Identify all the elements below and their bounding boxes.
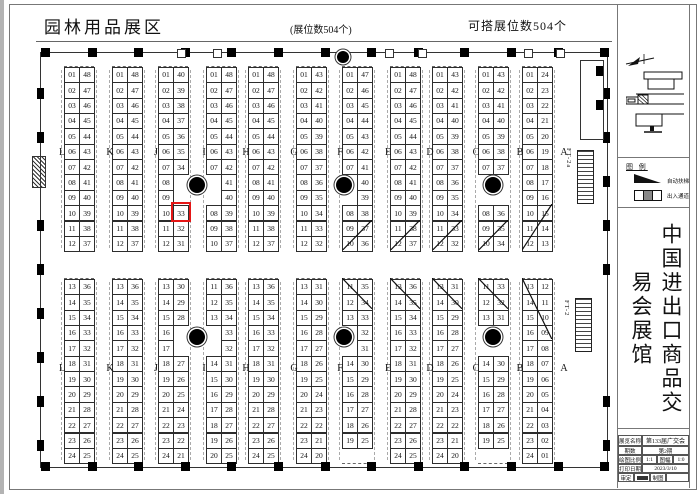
booth-cell: 12 bbox=[64, 236, 80, 252]
booth-cell: 37 bbox=[447, 159, 463, 175]
booth-cell: 39 bbox=[405, 205, 421, 221]
booth-cell: 28 bbox=[447, 325, 463, 341]
legend-item-label: 出入通道 bbox=[667, 192, 689, 200]
booth-cell: 26 bbox=[173, 371, 189, 387]
booth-cell: 02 bbox=[342, 82, 358, 98]
titleblock-label: 图幅 bbox=[657, 455, 673, 464]
booth-cell: 38 bbox=[173, 98, 189, 114]
booth-cell: 27 bbox=[447, 340, 463, 356]
booth-cell: 45 bbox=[357, 98, 373, 114]
booth-cell: 01 bbox=[248, 67, 264, 83]
legend-passage-symbol bbox=[634, 190, 662, 201]
legend-title: 图 例 bbox=[626, 162, 648, 172]
booth-cell: 42 bbox=[405, 159, 421, 175]
booth-cell: 36 bbox=[493, 205, 509, 221]
booth-cell: 13 bbox=[112, 279, 128, 295]
booth-cell: 38 bbox=[263, 221, 279, 237]
booth-cell: 26 bbox=[357, 417, 373, 433]
wall-pillar bbox=[600, 462, 609, 471]
booth-cell: 12 bbox=[296, 236, 312, 252]
booth-cell: 08 bbox=[158, 174, 174, 190]
booth-cell: 35 bbox=[493, 221, 509, 237]
booth-cell: 27 bbox=[357, 402, 373, 418]
booth-cell: 40 bbox=[405, 190, 421, 206]
booth-cell: 42 bbox=[447, 82, 463, 98]
booth-cell: 01 bbox=[296, 67, 312, 83]
booth-cell: 46 bbox=[263, 98, 279, 114]
booth-cell: 46 bbox=[221, 98, 237, 114]
booth-cell: 41 bbox=[127, 174, 143, 190]
booth-cell: 39 bbox=[173, 82, 189, 98]
booth-cell: 35 bbox=[127, 294, 143, 310]
booth-cell: 36 bbox=[263, 279, 279, 295]
booth-cell: 19 bbox=[537, 144, 553, 160]
booth-cell: 34 bbox=[311, 205, 327, 221]
wall-pillar bbox=[37, 264, 44, 275]
column-pillar bbox=[336, 177, 352, 193]
wall-pillar bbox=[460, 462, 469, 471]
booth-cell: 01 bbox=[112, 67, 128, 83]
booth-cell: 20 bbox=[206, 448, 222, 464]
booth-cell: 29 bbox=[263, 386, 279, 402]
booth-strip: 1136123513343332143115301629172818271926… bbox=[206, 278, 236, 464]
booth-cell: 31 bbox=[263, 356, 279, 372]
wall-door bbox=[213, 49, 222, 58]
booth-cell: 27 bbox=[311, 340, 327, 356]
booth-cell: 15 bbox=[296, 310, 312, 326]
wall-pillar bbox=[596, 66, 603, 76]
aisle-letter: J bbox=[150, 363, 162, 374]
booth-cell: 08 bbox=[64, 174, 80, 190]
booth-cell: 08 bbox=[342, 205, 358, 221]
booth-cell: 40 bbox=[263, 190, 279, 206]
booth-cell: 43 bbox=[263, 144, 279, 160]
booth-cell: 04 bbox=[342, 113, 358, 129]
wall-pillar bbox=[460, 48, 469, 57]
booth-cell: 30 bbox=[127, 371, 143, 387]
booth-cell: 02 bbox=[432, 82, 448, 98]
booth-cell: 08 bbox=[296, 174, 312, 190]
booth-cell: 24 bbox=[112, 448, 128, 464]
booth-cell: 33 bbox=[79, 325, 95, 341]
booth-cell: 34 bbox=[127, 310, 143, 326]
booth-cell: 13 bbox=[537, 236, 553, 252]
booth-cell: 05 bbox=[390, 128, 406, 144]
booth-cell: 10 bbox=[296, 205, 312, 221]
booth-cell: 44 bbox=[221, 128, 237, 144]
booth-cell: 12 bbox=[522, 236, 538, 252]
booth-cell: 08 bbox=[432, 174, 448, 190]
booth-cell: 01 bbox=[342, 67, 358, 83]
booth-cell: 08 bbox=[206, 205, 222, 221]
booth-cell: 48 bbox=[263, 67, 279, 83]
booth-cell: 10 bbox=[522, 205, 538, 221]
booth-cell: 37 bbox=[221, 236, 237, 252]
booth-cell: 48 bbox=[79, 67, 95, 83]
booth-cell: 37 bbox=[127, 236, 143, 252]
booth-cell: 30 bbox=[447, 294, 463, 310]
booth-cell: 07 bbox=[296, 159, 312, 175]
booth-cell: 21 bbox=[248, 402, 264, 418]
aisle-letter: K bbox=[104, 147, 116, 158]
booth-cell: 39 bbox=[493, 128, 509, 144]
booth-cell: 02 bbox=[158, 82, 174, 98]
booth-cell: 20 bbox=[432, 386, 448, 402]
booth-cell: 15 bbox=[522, 310, 538, 326]
booth-cell: 20 bbox=[537, 128, 553, 144]
booth-cell: 17 bbox=[432, 340, 448, 356]
booth-cell: 08 bbox=[537, 340, 553, 356]
wall-pillar bbox=[134, 48, 143, 57]
booth-cell: 40 bbox=[127, 190, 143, 206]
booth-cell: 48 bbox=[405, 67, 421, 83]
escalator-ft2-label: FT-2 bbox=[563, 300, 570, 350]
booth-cell: 27 bbox=[221, 417, 237, 433]
booth-cell: 03 bbox=[432, 98, 448, 114]
booth-cell: 22 bbox=[522, 417, 538, 433]
booth-cell: 29 bbox=[221, 386, 237, 402]
booth-cell: 10 bbox=[112, 205, 128, 221]
hall-name-vertical: 中国进出口商品交易会展馆 bbox=[622, 212, 686, 426]
booth-cell: 01 bbox=[478, 67, 494, 83]
booth-cell: 07 bbox=[158, 159, 174, 175]
booth-cell: 05 bbox=[537, 386, 553, 402]
booth-cell: 29 bbox=[493, 371, 509, 387]
booth-strip: 0143024203410440053906380737083609351034 bbox=[478, 66, 508, 252]
booth-cell: 25 bbox=[311, 371, 327, 387]
booth-cell: 37 bbox=[493, 159, 509, 175]
booth-cell: 44 bbox=[405, 128, 421, 144]
booth-cell: 31 bbox=[173, 236, 189, 252]
booth-cell: 30 bbox=[173, 279, 189, 295]
booth-cell: 16 bbox=[158, 325, 174, 341]
booth-cell: 14 bbox=[432, 294, 448, 310]
aisle-letter: K bbox=[104, 363, 116, 374]
booth-cell: 09 bbox=[248, 190, 264, 206]
booth-cell: 17 bbox=[158, 340, 174, 356]
booth-cell: 17 bbox=[390, 340, 406, 356]
booth-cell: 29 bbox=[357, 371, 373, 387]
booth-cell: 37 bbox=[405, 236, 421, 252]
booth-cell: 23 bbox=[248, 433, 264, 449]
booth-cell: 11 bbox=[296, 221, 312, 237]
booth-cell: 22 bbox=[311, 417, 327, 433]
booth-cell: 28 bbox=[357, 386, 373, 402]
booth-cell: 34 bbox=[173, 159, 189, 175]
booth-cell: 21 bbox=[311, 433, 327, 449]
booth-cell: 17 bbox=[248, 340, 264, 356]
booth-cell: 16 bbox=[342, 386, 358, 402]
booth-cell: 45 bbox=[79, 113, 95, 129]
booth-cell: 33 bbox=[221, 325, 237, 341]
booth-cell: 14 bbox=[522, 294, 538, 310]
wall-pillar bbox=[596, 100, 603, 110]
wall-pillar bbox=[274, 48, 283, 57]
booth-cell: 30 bbox=[311, 294, 327, 310]
booth-cell: 14 bbox=[248, 294, 264, 310]
wall-pillar bbox=[507, 462, 516, 471]
column-pillar bbox=[337, 51, 349, 63]
booth-cell: 08 bbox=[390, 174, 406, 190]
booth-cell: 25 bbox=[173, 386, 189, 402]
booth-cell: 22 bbox=[537, 98, 553, 114]
booth-cell: 41 bbox=[311, 98, 327, 114]
aisle-letter: E bbox=[382, 147, 394, 158]
booth-cell: 39 bbox=[311, 128, 327, 144]
aisle-letter: J bbox=[150, 147, 162, 158]
booth-cell: 02 bbox=[248, 82, 264, 98]
booth-cell: 23 bbox=[522, 433, 538, 449]
page-edge-bar bbox=[0, 0, 4, 494]
booth-cell: 18 bbox=[537, 159, 553, 175]
booth-cell: 29 bbox=[127, 386, 143, 402]
booth-cell: 16 bbox=[537, 190, 553, 206]
booth-cell: 02 bbox=[296, 82, 312, 98]
booth-cell: 31 bbox=[493, 310, 509, 326]
booth-cell: 44 bbox=[263, 128, 279, 144]
booth-cell: 09 bbox=[64, 190, 80, 206]
booth-cell: 32 bbox=[127, 340, 143, 356]
booth-cell: 45 bbox=[127, 113, 143, 129]
titleblock-approve-cell bbox=[634, 473, 650, 482]
booth-cell: 41 bbox=[263, 174, 279, 190]
booth-cell: 16 bbox=[112, 325, 128, 341]
booth-cell: 04 bbox=[478, 113, 494, 129]
booth-cell: 07 bbox=[206, 159, 222, 175]
booth-cell: 05 bbox=[522, 128, 538, 144]
booth-cell: 25 bbox=[493, 433, 509, 449]
booth-strip: 0143024203410440053906380737083609351034… bbox=[432, 66, 462, 252]
booth-cell: 03 bbox=[537, 417, 553, 433]
booth-cell: 01 bbox=[390, 67, 406, 83]
booth-cell: 12 bbox=[206, 294, 222, 310]
booth-cell: 43 bbox=[405, 144, 421, 160]
booth-cell: 15 bbox=[537, 205, 553, 221]
booth-cell: 04 bbox=[112, 113, 128, 129]
booth-cell: 36 bbox=[127, 279, 143, 295]
booth-cell: 16 bbox=[478, 386, 494, 402]
buildable-count-label: 可搭展位数504个 bbox=[468, 17, 567, 34]
booth-cell: 17 bbox=[206, 402, 222, 418]
booth-cell: 11 bbox=[342, 279, 358, 295]
booth-cell: 21 bbox=[537, 113, 553, 129]
booth-cell: 20 bbox=[112, 386, 128, 402]
aisle-letter: F bbox=[334, 147, 346, 158]
booth-cell: 03 bbox=[478, 98, 494, 114]
booth-cell: 11 bbox=[478, 279, 494, 295]
booth-strip: 0124022303220421052006190718081709161015… bbox=[522, 66, 552, 252]
booth-cell: 03 bbox=[342, 98, 358, 114]
booth-cell: 22 bbox=[173, 433, 189, 449]
wall-pillar bbox=[321, 462, 330, 471]
booth-cell: 45 bbox=[405, 113, 421, 129]
booth-cell: 14 bbox=[112, 294, 128, 310]
booth-strip: 0147024603450444054306420741403908380937… bbox=[342, 66, 372, 252]
legend-escalator-symbol bbox=[634, 174, 661, 183]
booth-cell: 35 bbox=[311, 190, 327, 206]
booth-strip: 0148024703460445054406430742414008390938… bbox=[206, 66, 236, 252]
booth-cell: 43 bbox=[79, 144, 95, 160]
booth-cell: 23 bbox=[432, 433, 448, 449]
booth-cell: 32 bbox=[357, 325, 373, 341]
booth-cell: 39 bbox=[221, 205, 237, 221]
sidebar-hline bbox=[617, 207, 690, 208]
booth-cell: 40 bbox=[173, 67, 189, 83]
booth-cell: 28 bbox=[79, 402, 95, 418]
aisle-letter: L bbox=[56, 363, 68, 374]
wall-pillar bbox=[367, 462, 376, 471]
booth-cell: 27 bbox=[405, 417, 421, 433]
booth-cell: 02 bbox=[206, 82, 222, 98]
wall-pillar bbox=[37, 308, 44, 319]
booth-cell: 21 bbox=[447, 433, 463, 449]
booth-cell: 39 bbox=[79, 205, 95, 221]
booth-cell: 26 bbox=[447, 356, 463, 372]
booth-cell: 04 bbox=[64, 113, 80, 129]
wall-pillar bbox=[274, 462, 283, 471]
booth-cell: 47 bbox=[79, 82, 95, 98]
booth-cell: 31 bbox=[127, 356, 143, 372]
booth-cell: 04 bbox=[522, 113, 538, 129]
escalator-ft2 bbox=[575, 298, 592, 352]
titleblock-label: 期数 bbox=[618, 446, 642, 455]
booth-cell: 27 bbox=[263, 417, 279, 433]
booth-cell: 04 bbox=[206, 113, 222, 129]
booth-cell: 05 bbox=[64, 128, 80, 144]
booth-cell: 32 bbox=[221, 340, 237, 356]
booth-cell: 28 bbox=[263, 402, 279, 418]
booth-cell: 16 bbox=[296, 325, 312, 341]
booth-cell: 10 bbox=[342, 236, 358, 252]
booth-strip: 0148024703460445054406430742084109401039… bbox=[248, 66, 278, 252]
booth-cell: 41 bbox=[405, 174, 421, 190]
booth-cell: 01 bbox=[537, 448, 553, 464]
booth-cell: 23 bbox=[112, 433, 128, 449]
booth-cell: 12 bbox=[432, 236, 448, 252]
booth-cell: 41 bbox=[447, 98, 463, 114]
wall-pillar bbox=[603, 264, 610, 275]
booth-cell: 03 bbox=[390, 98, 406, 114]
booth-cell: 21 bbox=[64, 402, 80, 418]
booth-cell: 24 bbox=[390, 448, 406, 464]
booth-cell: 03 bbox=[206, 98, 222, 114]
booth-cell: 13 bbox=[522, 279, 538, 295]
booth-cell: 30 bbox=[221, 371, 237, 387]
booth-cell: 11 bbox=[158, 221, 174, 237]
titleblock-value: 2023/3/10 bbox=[642, 464, 689, 473]
booth-cell: 14 bbox=[64, 294, 80, 310]
booth-cell: 13 bbox=[478, 310, 494, 326]
booth-cell: 19 bbox=[342, 433, 358, 449]
booth-cell: 07 bbox=[64, 159, 80, 175]
aisle-letter: C bbox=[470, 147, 482, 158]
aisle-letter: H bbox=[240, 363, 252, 374]
booth-cell: 35 bbox=[357, 279, 373, 295]
wall-door bbox=[385, 49, 394, 58]
booth-cell: 31 bbox=[357, 340, 373, 356]
booth-cell: 17 bbox=[112, 340, 128, 356]
booth-cell: 34 bbox=[79, 310, 95, 326]
aisle-letter: B bbox=[514, 363, 526, 374]
booth-cell: 03 bbox=[296, 98, 312, 114]
booth-cell: 31 bbox=[447, 279, 463, 295]
wall-pillar bbox=[41, 462, 50, 471]
booth-cell: 33 bbox=[357, 310, 373, 326]
aisle-letter: I bbox=[198, 363, 210, 374]
booth-cell: 33 bbox=[447, 221, 463, 237]
booth-cell: 26 bbox=[127, 433, 143, 449]
booth-cell: 21 bbox=[432, 402, 448, 418]
booth-cell: 41 bbox=[357, 159, 373, 175]
booth-cell: 35 bbox=[447, 190, 463, 206]
booth-cell: 29 bbox=[447, 310, 463, 326]
booth-cell: 24 bbox=[64, 448, 80, 464]
booth-cell: 09 bbox=[537, 325, 553, 341]
booth-cell: 48 bbox=[127, 67, 143, 83]
booth-cell: 37 bbox=[311, 159, 327, 175]
booth-cell: 48 bbox=[221, 67, 237, 83]
booth-cell: 10 bbox=[537, 310, 553, 326]
booth-cell: 47 bbox=[405, 82, 421, 98]
booth-cell: 02 bbox=[112, 82, 128, 98]
wall-pillar bbox=[603, 440, 610, 451]
booth-cell: 28 bbox=[311, 325, 327, 341]
booth-cell: 46 bbox=[357, 82, 373, 98]
booth-cell: 08 bbox=[248, 174, 264, 190]
booth-cell: 34 bbox=[405, 310, 421, 326]
booth-cell: 20 bbox=[248, 386, 264, 402]
booth-cell: 28 bbox=[221, 402, 237, 418]
booth-cell: 15 bbox=[248, 310, 264, 326]
booth-cell: 12 bbox=[158, 236, 174, 252]
booth-cell: 02 bbox=[478, 82, 494, 98]
aisle-letter: D bbox=[424, 363, 436, 374]
titleblock-value: 第2期 bbox=[642, 446, 689, 455]
titleblock-label: 审定 bbox=[618, 473, 634, 482]
highlight-box bbox=[171, 202, 191, 222]
page-title: 园林用品展区 bbox=[44, 13, 164, 38]
booth-cell: 28 bbox=[127, 402, 143, 418]
booth-cell: 11 bbox=[522, 221, 538, 237]
booth-cell: 21 bbox=[158, 402, 174, 418]
booth-cell: 07 bbox=[248, 159, 264, 175]
booth-cell: 29 bbox=[173, 294, 189, 310]
booth-cell: 41 bbox=[493, 98, 509, 114]
booth-cell: 11 bbox=[537, 294, 553, 310]
booth-cell: 14 bbox=[296, 294, 312, 310]
booth-cell: 36 bbox=[79, 279, 95, 295]
booth-cell: 24 bbox=[311, 386, 327, 402]
booth-cell: 46 bbox=[79, 98, 95, 114]
booth-cell: 21 bbox=[390, 402, 406, 418]
booth-cell: 01 bbox=[206, 67, 222, 83]
booth-cell: 23 bbox=[296, 433, 312, 449]
aisle-letter: D bbox=[424, 147, 436, 158]
booth-cell: 20 bbox=[64, 386, 80, 402]
booth-cell: 27 bbox=[79, 417, 95, 433]
wall-pillar bbox=[37, 396, 44, 407]
booth-cell: 12 bbox=[478, 294, 494, 310]
booth-strip: 1336143515341633173218311930202921282227… bbox=[248, 278, 278, 464]
booth-cell: 26 bbox=[493, 417, 509, 433]
booth-cell: 47 bbox=[357, 67, 373, 83]
booth-cell: 16 bbox=[390, 325, 406, 341]
booth-count-label: (展位数504个) bbox=[290, 21, 352, 36]
drawing-sheet: 园林用品展区 (展位数504个) 可搭展位数504个 0148024703460… bbox=[0, 0, 700, 494]
booth-cell: 17 bbox=[522, 340, 538, 356]
booth-cell: 29 bbox=[79, 386, 95, 402]
booth-cell: 09 bbox=[342, 221, 358, 237]
